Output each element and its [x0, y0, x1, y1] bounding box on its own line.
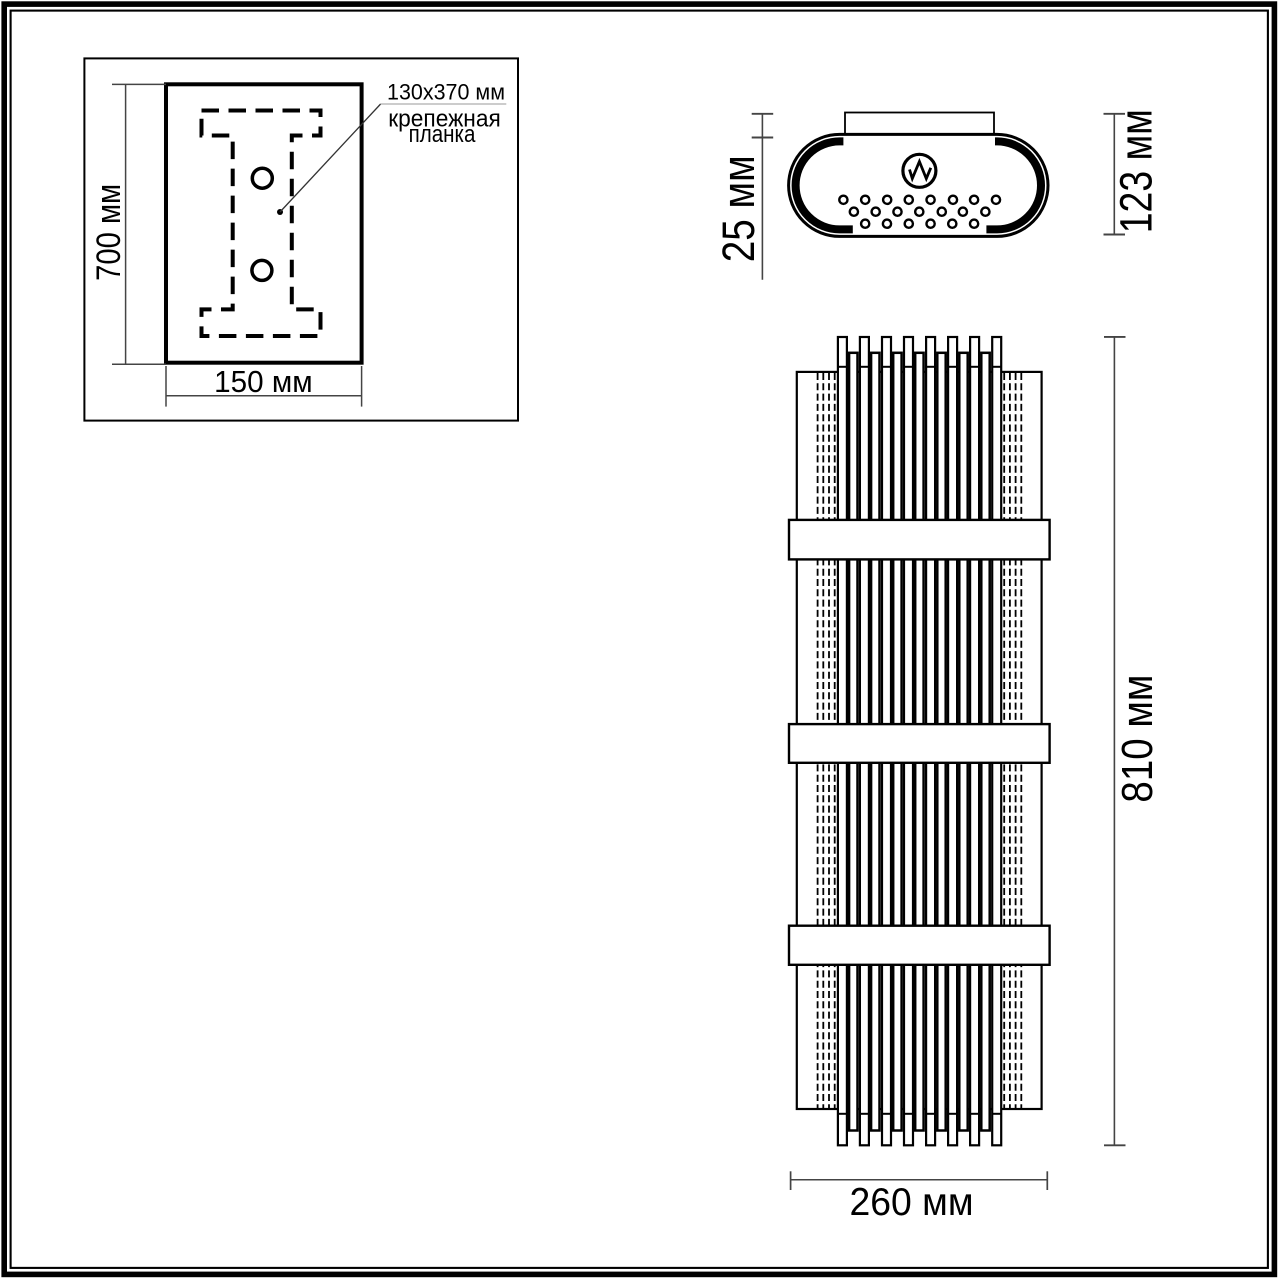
svg-text:810 мм: 810 мм: [1114, 675, 1162, 803]
svg-text:260 мм: 260 мм: [850, 1181, 974, 1224]
svg-text:25 мм: 25 мм: [713, 155, 764, 262]
svg-text:150 мм: 150 мм: [214, 364, 313, 399]
svg-text:123 мм: 123 мм: [1110, 109, 1161, 233]
svg-text:700 мм: 700 мм: [90, 184, 128, 281]
svg-text:планка: планка: [409, 121, 476, 148]
svg-text:130x370 мм: 130x370 мм: [387, 80, 505, 105]
